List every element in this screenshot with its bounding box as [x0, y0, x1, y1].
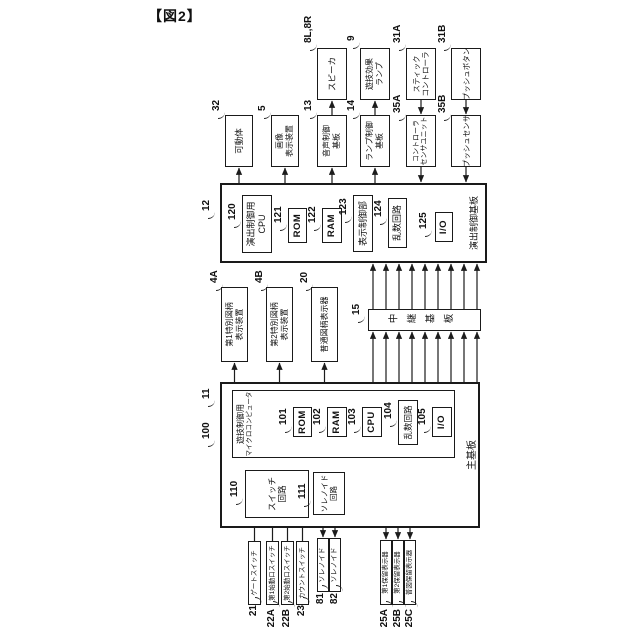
- solenoid-circuit-line2: 回路: [329, 486, 338, 501]
- ref-main-board: 11: [201, 388, 212, 399]
- ref-count-switch: 23: [296, 605, 307, 631]
- gate-switch-box: ゲートスイッチ: [248, 541, 261, 605]
- ref-micom-io: 105: [417, 408, 428, 425]
- ref-normal-hold-display: 25C: [404, 609, 415, 635]
- start2-switch-box: 第2始動口スイッチ: [281, 541, 294, 605]
- ref-micom-cpu: 103: [347, 408, 358, 425]
- ssd1-line1: 第1特別図柄: [225, 302, 235, 346]
- ref-solenoid-1: 81: [315, 593, 326, 619]
- ref-effect-cpu: 120: [227, 203, 238, 220]
- stick-controller-line2: コントローラ: [421, 52, 430, 97]
- sound-control-board-box: 音声制御 基板: [317, 115, 347, 167]
- ref-micom-rom: 101: [278, 408, 289, 425]
- micom-io-box: I/O: [432, 407, 452, 437]
- ref-hold-display-2: 25B: [392, 609, 403, 635]
- effect-board-name: 演出制御基板: [467, 183, 480, 263]
- ref-push-sensor: 35B: [437, 95, 448, 113]
- ref-lamp-board: 14: [346, 100, 357, 111]
- solenoid-circuit-box: ソレノイド 回路: [313, 472, 345, 515]
- block-diagram-canvas: 主基板 11 遊技制御用 マイクロコンピュータ 100 ROM 101 RAM …: [145, 10, 500, 635]
- movable-body-box: 可動体: [225, 115, 253, 167]
- switch-circuit-line2: 回路: [277, 486, 287, 503]
- ref-effect-rom: 121: [273, 206, 284, 223]
- stick-controller-line1: スティック: [412, 55, 421, 92]
- ref-effect-board: 12: [201, 200, 212, 211]
- image-display-line2: 表示装置: [285, 125, 295, 157]
- lamp-control-board-box: ランプ制御 基板: [360, 115, 390, 167]
- micom-label-line2: マイクロコンピュータ: [246, 392, 254, 457]
- ref-sound-board: 13: [303, 100, 314, 111]
- micom-rom-box: ROM: [293, 407, 312, 437]
- ref-image-display: 5: [257, 105, 268, 111]
- ref-ssd1: 4A: [209, 270, 220, 283]
- solenoid-circuit-line1: ソレノイド: [320, 475, 329, 513]
- controller-sensor-line1: コントローラ: [413, 120, 421, 162]
- ref-micom-ram: 102: [312, 408, 323, 425]
- solenoid-2-box: ソレノイド: [329, 538, 341, 592]
- ref-start1-switch: 22A: [266, 609, 277, 635]
- effect-cpu-box: 演出制御用 CPU: [242, 195, 272, 253]
- ssd1-line2: 表示装置: [235, 309, 245, 341]
- ssd2-line1: 第2特別図柄: [270, 302, 280, 346]
- effect-random-circuit-box: 乱数回路: [388, 198, 407, 248]
- start1-switch-box: 第1始動口スイッチ: [266, 541, 279, 605]
- ref-micom: 100: [201, 422, 212, 439]
- normal-hold-display-box: 普図保留表示器: [404, 540, 416, 605]
- micom-label-line1: 遊技制御用: [236, 404, 246, 444]
- effect-io-box: I/O: [435, 212, 453, 242]
- hold-display-2-box: 第2保留表示器: [392, 540, 404, 605]
- ref-ssd2: 4B: [254, 270, 265, 283]
- hold-display-1-box: 第1保留表示器: [380, 540, 392, 605]
- sound-board-line1: 音声制御: [322, 125, 332, 157]
- lamp-board-line1: ランプ制御: [365, 121, 375, 161]
- ref-movable-body: 32: [211, 100, 222, 111]
- count-switch-box: カウントスイッチ: [296, 541, 309, 605]
- main-board-name: 主基板: [463, 382, 478, 528]
- micom-ram-box: RAM: [327, 407, 347, 437]
- ref-solenoid-2: 82: [329, 593, 340, 619]
- normal-symbol-display-box: 普通図柄表示器: [311, 287, 338, 362]
- effect-lamp-line2: ランプ: [375, 62, 385, 86]
- ref-relay-board: 15: [351, 304, 362, 315]
- relay-board-box: 中継基板: [368, 309, 481, 331]
- ref-effect-random: 124: [373, 200, 384, 217]
- stick-controller-box: スティック コントローラ: [406, 48, 436, 100]
- micom-random-circuit-box: 乱数回路: [398, 400, 418, 445]
- ref-switch-circuit: 110: [229, 481, 240, 497]
- effect-rom-box: ROM: [288, 208, 307, 243]
- solenoid-1-box: ソレノイド: [317, 538, 329, 592]
- special-symbol-display-1-box: 第1特別図柄 表示装置: [221, 287, 248, 362]
- ref-effect-lamp: 9: [346, 35, 357, 41]
- push-sensor-box: プッシュセンサ: [451, 115, 481, 167]
- ref-effect-io: 125: [418, 212, 429, 229]
- ref-start2-switch: 22B: [281, 609, 292, 635]
- ref-push-button: 31B: [437, 25, 448, 43]
- special-symbol-display-2-box: 第2特別図柄 表示装置: [266, 287, 293, 362]
- image-display-box: 画像 表示装置: [271, 115, 299, 167]
- ref-gate-switch: 21: [248, 605, 259, 631]
- ref-speaker: 8L,8R: [303, 16, 314, 43]
- effect-cpu-line2: CPU: [257, 215, 268, 234]
- ref-display-control: 123: [338, 198, 349, 215]
- ref-controller-sensor-unit: 35A: [392, 95, 403, 113]
- effect-lamp-box: 遊技効果 ランプ: [360, 48, 390, 100]
- effect-lamp-line1: 遊技効果: [365, 58, 375, 90]
- push-button-box: プッシュボタン: [451, 48, 481, 100]
- effect-cpu-line1: 演出制御用: [246, 202, 257, 247]
- speaker-box: スピーカ: [317, 48, 347, 100]
- nsd-line1: 普通図柄表示器: [320, 297, 330, 353]
- patent-figure-page: { "figure_title": "【図2】", "main_board": …: [0, 0, 640, 640]
- display-control-box: 表示制御部: [353, 195, 373, 252]
- micom-cpu-box: CPU: [362, 407, 382, 437]
- ref-solenoid-circuit: 111: [297, 483, 308, 499]
- controller-sensor-line2: センサユニット: [421, 117, 429, 166]
- ref-nsd: 20: [299, 272, 310, 283]
- ref-hold-display-1: 25A: [379, 609, 390, 635]
- ssd2-line2: 表示装置: [280, 309, 290, 341]
- relay-board-name: 中継基板: [388, 314, 462, 325]
- sound-board-line2: 基板: [332, 133, 342, 149]
- controller-sensor-unit-box: コントローラ センサユニット: [406, 115, 436, 167]
- switch-circuit-line1: スイッチ: [267, 477, 277, 511]
- lamp-board-line2: 基板: [375, 133, 385, 149]
- ref-micom-random: 104: [383, 402, 394, 419]
- ref-stick-controller: 31A: [392, 25, 403, 43]
- image-display-line1: 画像: [275, 133, 285, 149]
- ref-effect-ram: 122: [307, 206, 318, 223]
